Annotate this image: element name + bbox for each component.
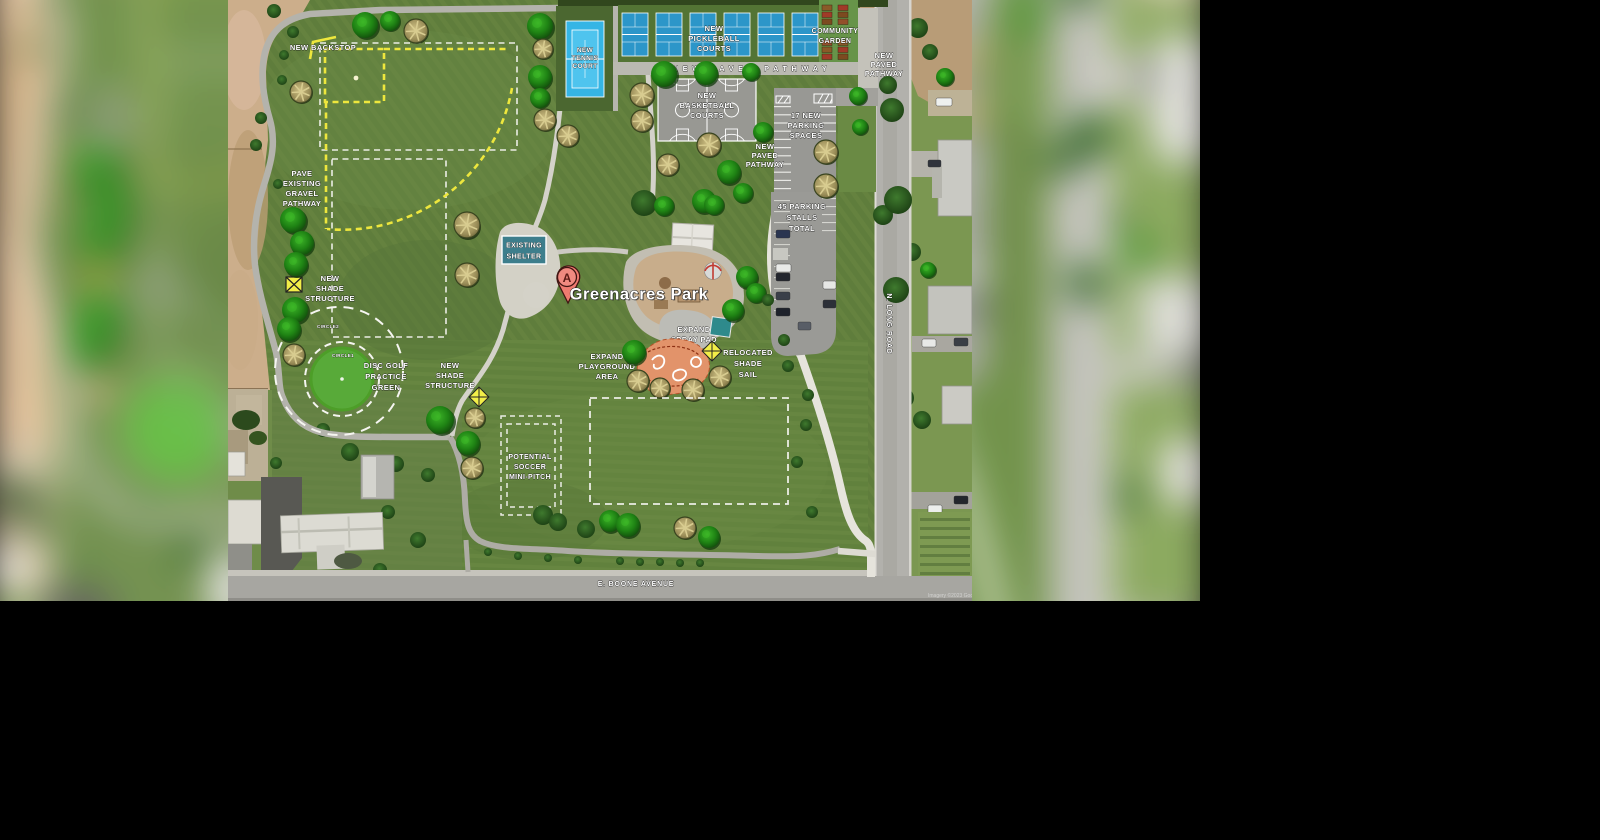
- svg-text:NEW BACKSTOP: NEW BACKSTOP: [290, 43, 356, 52]
- svg-text:NEW: NEW: [577, 47, 594, 54]
- svg-text:RELOCATED: RELOCATED: [723, 348, 773, 357]
- svg-text:SPACES: SPACES: [790, 131, 823, 140]
- svg-text:STRUCTURE: STRUCTURE: [425, 381, 475, 390]
- svg-text:GARDEN: GARDEN: [819, 38, 852, 45]
- svg-text:POTENTIAL: POTENTIAL: [508, 454, 552, 461]
- svg-text:EXPAND: EXPAND: [590, 352, 623, 361]
- svg-text:PATHWAY: PATHWAY: [746, 160, 785, 169]
- svg-text:N. LONG ROAD: N. LONG ROAD: [885, 293, 892, 354]
- svg-text:PAVED: PAVED: [871, 60, 898, 69]
- svg-text:COMMUNITY: COMMUNITY: [812, 28, 859, 35]
- svg-text:PAVE: PAVE: [292, 169, 313, 178]
- svg-text:NEW: NEW: [321, 274, 340, 283]
- svg-text:NEW: NEW: [756, 142, 775, 151]
- svg-text:NEW: NEW: [705, 24, 724, 33]
- svg-text:EXISTING: EXISTING: [506, 243, 542, 250]
- svg-text:CIRCLE2: CIRCLE2: [317, 324, 339, 329]
- svg-text:PAVED: PAVED: [752, 151, 779, 160]
- svg-text:GREEN: GREEN: [372, 383, 401, 392]
- svg-text:A: A: [563, 271, 572, 285]
- svg-text:PLAYGROUND: PLAYGROUND: [579, 362, 636, 371]
- svg-text:Imagery ©2023 Google: Imagery ©2023 Google: [928, 592, 972, 599]
- svg-text:E. BOONE AVENUE: E. BOONE AVENUE: [598, 581, 675, 588]
- svg-text:SHADE: SHADE: [316, 284, 344, 293]
- svg-text:PICKLEBALL: PICKLEBALL: [688, 34, 740, 43]
- svg-text:SHADE: SHADE: [734, 359, 762, 368]
- svg-text:NEW: NEW: [875, 51, 894, 60]
- svg-text:CIRCLE1: CIRCLE1: [332, 353, 354, 358]
- svg-text:TOTAL: TOTAL: [789, 224, 815, 233]
- svg-text:EXISTING: EXISTING: [283, 179, 321, 188]
- svg-text:NEW: NEW: [698, 91, 717, 100]
- svg-text:Greenacres Park: Greenacres Park: [570, 286, 709, 304]
- svg-text:TENNIS: TENNIS: [572, 55, 599, 62]
- svg-text:GRAVEL: GRAVEL: [285, 189, 318, 198]
- svg-text:SHADE: SHADE: [436, 371, 464, 380]
- svg-text:NEW: NEW: [441, 361, 460, 370]
- svg-text:STRUCTURE: STRUCTURE: [305, 294, 355, 303]
- svg-text:STALLS: STALLS: [786, 213, 817, 222]
- svg-text:PATHWAY: PATHWAY: [865, 69, 904, 78]
- svg-text:BASKETBALL: BASKETBALL: [680, 101, 735, 110]
- svg-text:COURTS: COURTS: [690, 111, 724, 120]
- svg-text:PARKING: PARKING: [788, 121, 825, 130]
- svg-text:AREA: AREA: [596, 372, 619, 381]
- svg-text:PATHWAY: PATHWAY: [283, 199, 322, 208]
- svg-text:PRACTICE: PRACTICE: [365, 372, 407, 381]
- svg-text:EXPAND: EXPAND: [677, 325, 710, 334]
- svg-text:SHELTER: SHELTER: [507, 254, 542, 261]
- svg-text:17 NEW: 17 NEW: [791, 111, 822, 120]
- svg-text:SAIL: SAIL: [739, 370, 758, 379]
- svg-text:COURT: COURT: [572, 63, 597, 70]
- svg-text:45 PARKING: 45 PARKING: [778, 202, 826, 211]
- svg-text:DISC GOLF: DISC GOLF: [364, 361, 408, 370]
- svg-text:COURTS: COURTS: [697, 44, 731, 53]
- svg-text:MINI-PITCH: MINI-PITCH: [509, 474, 551, 481]
- svg-text:SOCCER: SOCCER: [514, 464, 546, 471]
